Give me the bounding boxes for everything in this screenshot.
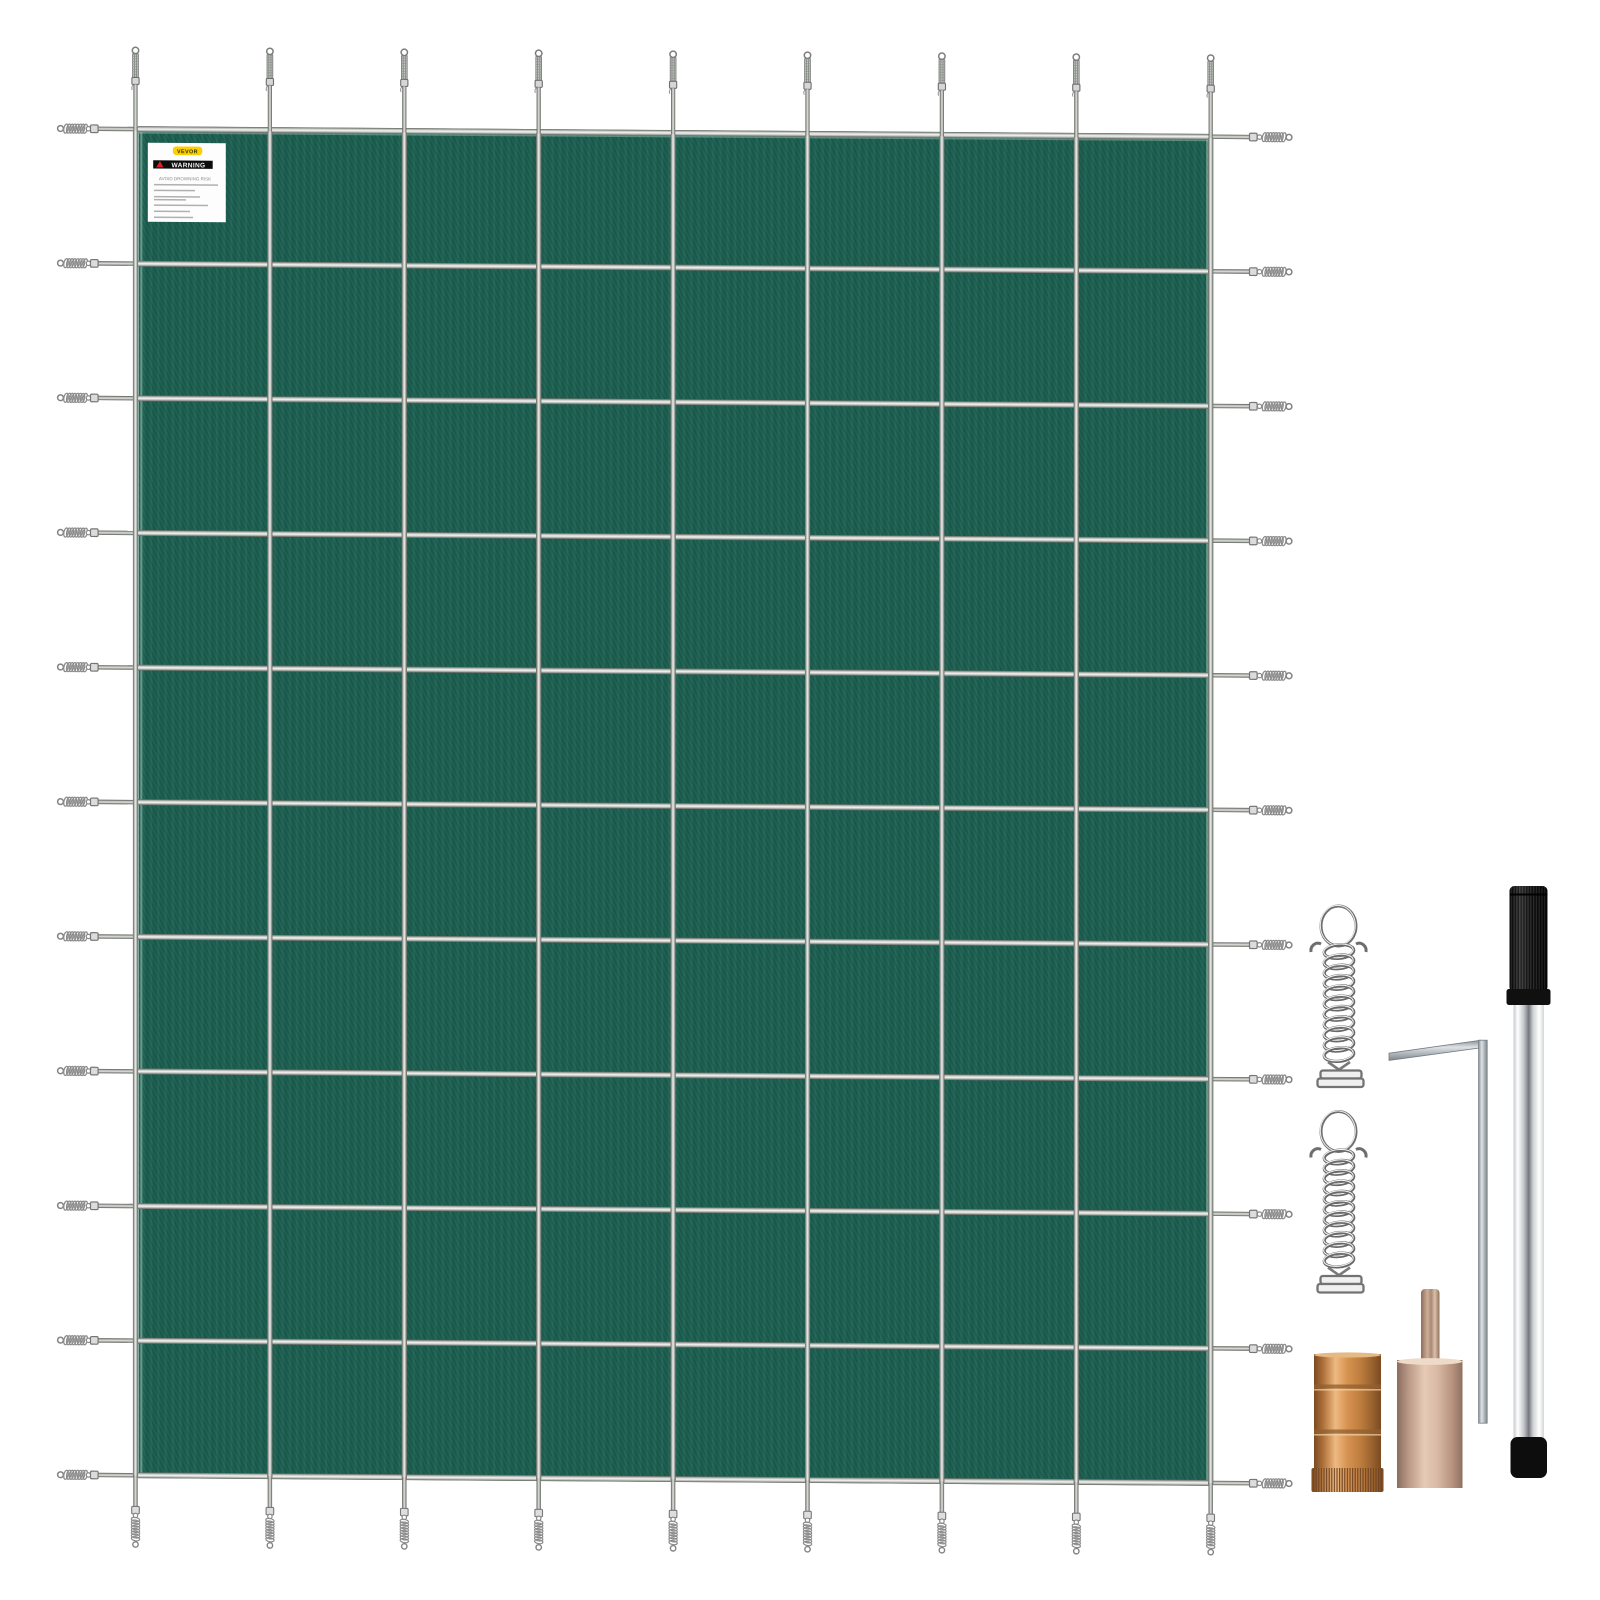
svg-text:AVOID DROWNING RISK: AVOID DROWNING RISK <box>159 176 211 181</box>
svg-text:VEVOR: VEVOR <box>177 149 198 155</box>
svg-text:WARNING: WARNING <box>172 162 206 169</box>
